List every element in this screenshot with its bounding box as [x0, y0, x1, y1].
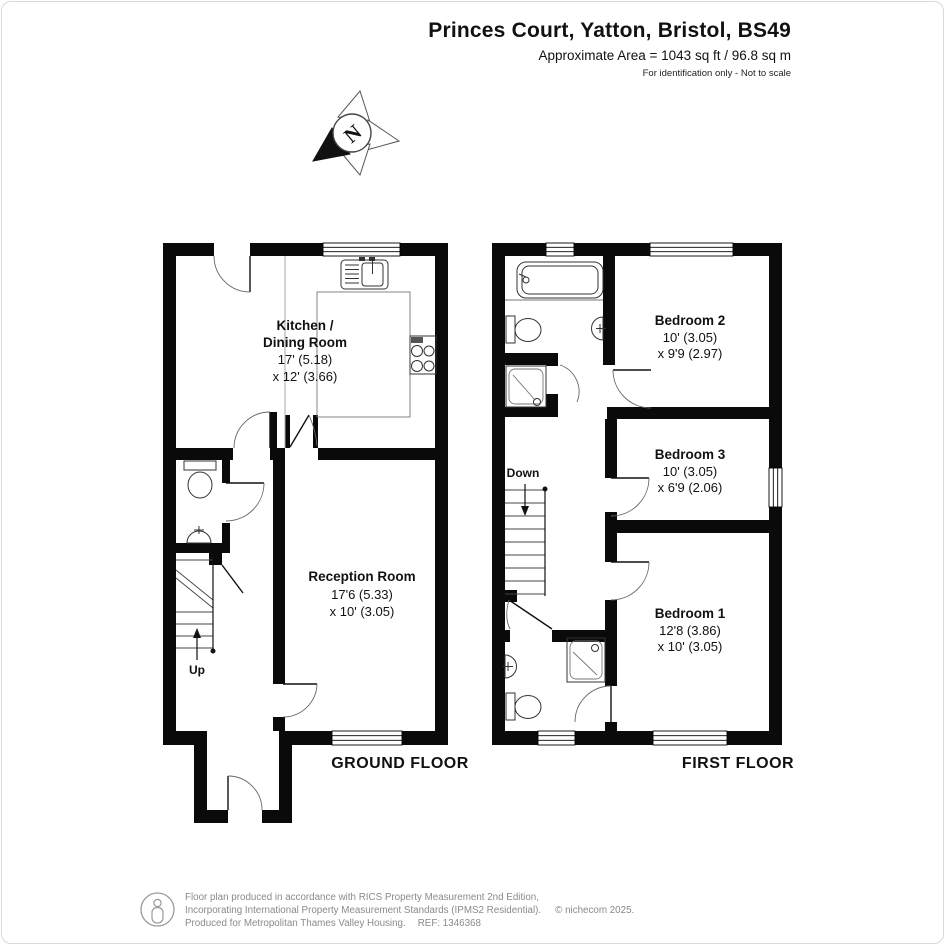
kitchen-dim2: x 12' (3.66)	[273, 369, 338, 384]
hall-kitchen-door	[234, 412, 270, 448]
up-arrow	[193, 628, 201, 660]
porch-front-door	[228, 776, 262, 810]
nichecom-logo-icon	[139, 891, 176, 928]
ensuite-toilet	[506, 693, 541, 720]
kitchen-sink	[341, 257, 388, 289]
bedroom3-door	[611, 478, 649, 516]
footer-line2: Incorporating International Property Mea…	[185, 905, 541, 916]
bedroom1-window	[653, 731, 727, 745]
bedroom2-name: Bedroom 2	[655, 313, 726, 328]
bedroom2-dim1: 10' (3.05)	[663, 330, 718, 345]
ground-floor-plan: Up Kitchen / Dining Room 17' (5.18) x 12…	[163, 243, 469, 823]
bedroom1-door	[611, 562, 649, 600]
bedroom3-name: Bedroom 3	[655, 447, 726, 462]
hall-door-leaf	[222, 565, 243, 593]
shower-cubicle-door	[560, 365, 579, 402]
footer-line3: Produced for Metropolitan Thames Valley …	[185, 918, 406, 929]
compass-rose: N	[313, 91, 399, 175]
bedroom1-name: Bedroom 1	[655, 606, 726, 621]
footer-line2-row: Incorporating International Property Mea…	[185, 904, 634, 917]
ground-floor-label: GROUND FLOOR	[331, 755, 469, 772]
bedroom3-label: Bedroom 3 10' (3.05) x 6'9 (2.06)	[655, 447, 726, 495]
down-label: Down	[507, 466, 540, 480]
ground-floor-window-bottom	[332, 731, 402, 745]
first-floor-walls	[492, 243, 782, 745]
first-floor-window-bottom-left	[538, 731, 575, 745]
first-floor-stairs	[505, 487, 548, 597]
bedroom2-dim2: x 9'9 (2.97)	[658, 346, 723, 361]
up-label: Up	[189, 663, 205, 677]
bedroom1-dim1: 12'8 (3.86)	[659, 623, 721, 638]
wc-toilet	[184, 461, 216, 498]
reception-name: Reception Room	[308, 569, 415, 584]
ground-floor-window-top	[323, 243, 400, 256]
bathtub	[517, 262, 603, 298]
bathroom-window	[546, 243, 574, 256]
bedroom2-label: Bedroom 2 10' (3.05) x 9'9 (2.97)	[655, 313, 726, 361]
footer-ref: REF: 1346368	[418, 918, 481, 929]
cupboard-door	[507, 600, 552, 629]
bedroom2-window	[650, 243, 733, 256]
wc-basin	[187, 526, 211, 543]
bathroom-toilet	[506, 316, 541, 343]
reception-dim2: x 10' (3.05)	[330, 604, 395, 619]
footer-copyright: © nichecom 2025.	[555, 905, 634, 916]
wc-door	[226, 483, 264, 521]
first-floor-label: FIRST FLOOR	[682, 755, 794, 772]
reception-hall-door	[283, 684, 317, 717]
kitchen-name-line1: Kitchen /	[276, 318, 333, 333]
bedroom2-door	[613, 370, 651, 408]
reception-room-label: Reception Room 17'6 (5.33) x 10' (3.05)	[308, 569, 415, 619]
footer-line1: Floor plan produced in accordance with R…	[185, 891, 634, 904]
bedroom3-dim2: x 6'9 (2.06)	[658, 480, 723, 495]
bedroom3-window	[769, 468, 782, 507]
kitchen-entry-door	[214, 256, 250, 292]
kitchen-dim1: 17' (5.18)	[278, 352, 333, 367]
floorplan-canvas: N	[0, 0, 945, 945]
footer-text: Floor plan produced in accordance with R…	[185, 891, 634, 930]
footer: Floor plan produced in accordance with R…	[139, 891, 634, 930]
kitchen-dining-label: Kitchen / Dining Room 17' (5.18) x 12' (…	[263, 318, 347, 384]
down-arrow	[521, 484, 529, 516]
footer-line3-row: Produced for Metropolitan Thames Valley …	[185, 917, 634, 930]
bedroom1-dim2: x 10' (3.05)	[658, 639, 723, 654]
hob	[410, 336, 436, 374]
bedroom1-label: Bedroom 1 12'8 (3.86) x 10' (3.05)	[655, 606, 726, 654]
ensuite-shower	[567, 638, 605, 682]
reception-kitchen-door	[290, 415, 317, 447]
ensuite-basin	[503, 655, 517, 678]
bedroom3-dim1: 10' (3.05)	[663, 464, 718, 479]
first-floor-plan: Down Bedroom 2 10' (3.05) x 9'9 (2.97) B…	[492, 243, 794, 772]
reception-dim1: 17'6 (5.33)	[331, 587, 393, 602]
shower-cubicle	[506, 366, 546, 407]
kitchen-name-line2: Dining Room	[263, 335, 347, 350]
ensuite-door	[575, 686, 611, 722]
ground-floor-stairs	[176, 557, 216, 654]
